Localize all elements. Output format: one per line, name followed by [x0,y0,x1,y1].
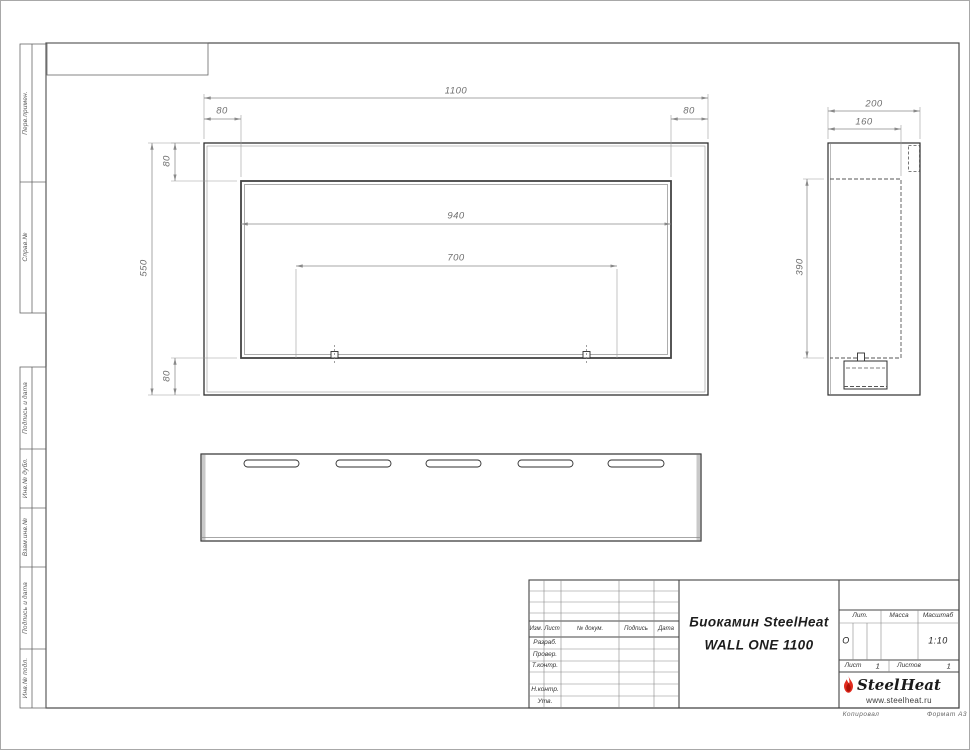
dim-overall-width: 1100 [445,86,467,96]
tb-litera-label: Лит. [852,613,867,620]
dim-margin-left: 80 [216,106,228,116]
drawing-sheet: 1100 80 80 80 550 80 940 700 200 160 390… [0,0,970,750]
tb-mass-label: Масса [889,613,908,620]
dim-depth: 200 [865,99,882,109]
steelheat-logo: Steel Heat [841,675,957,696]
logo-website: www.steelheat.ru [866,697,932,705]
dimension-lines [148,94,920,395]
dim-burner-width: 700 [447,253,464,263]
footer-format: Формат А3 [927,712,967,719]
tb-sheet-number: 1 [876,662,881,670]
logo-steel-text: Steel [857,678,900,693]
tb-col-dokum: № докум. [577,626,603,632]
front-view [204,143,708,395]
margin-label-perv-primen: Перв.примен. [23,91,30,135]
dim-inner-depth: 160 [855,117,872,127]
side-view [828,143,920,395]
margin-label-podpis-data-2: Подпись и дата [23,582,30,634]
dim-margin-right: 80 [683,106,695,116]
tb-row-razrab: Разраб. [533,640,557,647]
margin-label-sprav-no: Справ.№ [23,232,30,261]
tb-sheet-label: Лист [845,663,862,670]
logo-heat-text: Heat [901,678,941,693]
drawing-linework [1,1,969,749]
tb-row-utv: Утв. [538,699,553,706]
tb-row-nkontr: Н.контр. [531,687,559,694]
dim-margin-bottom: 80 [162,370,172,382]
dim-height: 550 [139,259,149,276]
tb-litera-value: О [842,637,850,646]
tb-col-list: Лист [544,626,559,632]
tb-scale-value: 1:10 [928,637,948,646]
dim-margin-top: 80 [162,155,172,167]
flame-icon [841,675,856,694]
tb-sheets-total: 1 [947,662,952,670]
tb-col-podpis: Подпись [624,626,648,632]
bottom-view [201,454,701,541]
tb-sheets-label: Листов [897,663,921,670]
tb-col-data: Дата [658,626,674,632]
product-title-line1: Биокамин SteelHeat [689,615,828,629]
margin-label-vzam-inv: Взам.инв.№ [23,518,30,557]
tb-col-izm: Изм. [530,626,543,632]
margin-label-inv-dubl: Инв.№ дубл. [23,458,30,498]
footer-copied: Копировал [843,712,880,719]
tb-scale-label: Масштаб [923,613,953,620]
tb-row-prover: Провер. [533,652,557,659]
tb-row-tkontr: Т.контр. [532,663,558,670]
dim-inner-height: 390 [795,258,805,275]
margin-label-inv-podl: Инв.№ подл. [23,658,30,699]
margin-label-podpis-data-1: Подпись и дата [23,382,30,434]
product-title-line2: WALL ONE 1100 [705,638,814,652]
dim-opening-width: 940 [447,211,464,221]
